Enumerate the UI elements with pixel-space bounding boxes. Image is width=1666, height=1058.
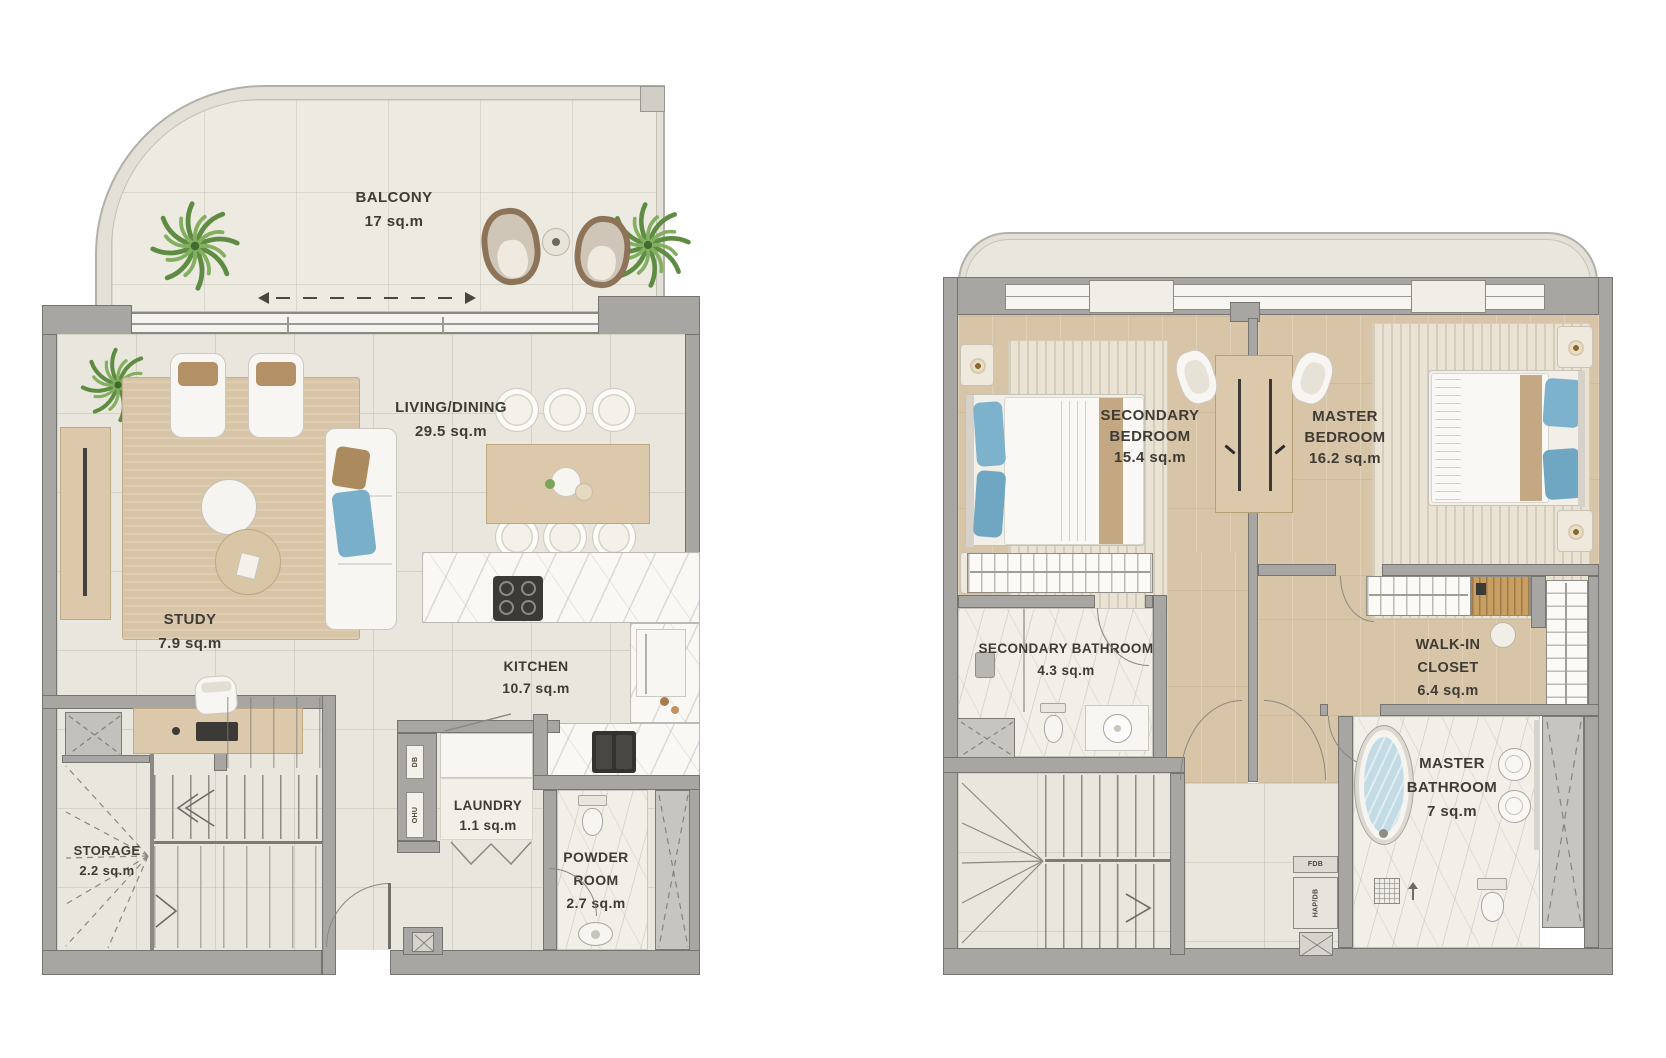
bed-throw [1520, 375, 1542, 501]
balcony-side-table [542, 228, 570, 256]
laundry-label: LAUNDRY 1.1 sq.m [454, 796, 522, 836]
canopy-end-bar [640, 86, 665, 112]
decor-bottle [660, 697, 669, 706]
washer [440, 733, 533, 778]
armchair [248, 353, 304, 438]
dining-table [486, 444, 650, 524]
vanity-counter [1534, 720, 1540, 850]
wall [1598, 277, 1613, 975]
wall [42, 305, 132, 335]
bathroom-vanity [1085, 705, 1149, 751]
hapdb-panel: HAP/DB [1293, 877, 1338, 929]
closet-hanger-column [1546, 580, 1588, 712]
fdb-panel: FDB [1293, 856, 1338, 873]
wall [943, 757, 1185, 773]
floorplan-canvas: BALCONY 17 sq.m LIVING/DINING [0, 0, 1666, 1058]
shower-drain [1374, 878, 1400, 904]
palm-plant-icon [147, 198, 243, 294]
bed-pillow-blue [1542, 378, 1582, 428]
shaft-box [1299, 932, 1333, 956]
wall [1170, 773, 1185, 955]
nightstand [960, 344, 994, 386]
tv-console [60, 427, 111, 620]
toilet [578, 795, 607, 806]
shaft-box [957, 718, 1015, 758]
bed-pillow-blue [973, 401, 1006, 467]
kitchen-island [422, 552, 700, 623]
sliding-door [132, 312, 598, 334]
balcony-label: BALCONY 17 sq.m [356, 186, 433, 234]
dining-chair [543, 388, 587, 432]
wall [1320, 704, 1328, 716]
washer-lid-line [443, 711, 513, 733]
headboard [1578, 371, 1585, 507]
stairs-upper-dashed [227, 697, 322, 768]
living-dining-label: LIVING/DINING 29.5 sq.m [395, 396, 507, 444]
shaft-tall [1542, 716, 1584, 928]
window-mullion [1411, 280, 1486, 313]
bathtub [1355, 726, 1413, 844]
closet-shelf-unit [1471, 576, 1531, 616]
stairs-landing-line [154, 841, 322, 844]
storage-label: STORAGE 2.2 sq.m [74, 841, 141, 881]
stair-winder-icon [960, 775, 1045, 947]
bathroom-sink [1498, 748, 1531, 781]
stairs-direction-chevron-icon [1122, 892, 1156, 924]
entry-door-leaf [388, 883, 391, 949]
throw-pillow [331, 446, 371, 491]
pouf [1490, 622, 1516, 648]
walkin-closet-label: WALK-IN CLOSET 6.4 sq.m [1416, 634, 1481, 703]
powder-sink [578, 922, 613, 946]
wall [1531, 576, 1546, 628]
coffee-table [201, 479, 257, 535]
wall [1145, 595, 1153, 608]
toilet-bowl [1481, 892, 1504, 922]
db-panel: DB [406, 745, 424, 779]
coffee-table-wood [215, 529, 281, 595]
stairs-flight [1045, 775, 1170, 857]
wall [42, 950, 322, 975]
wall [42, 305, 57, 975]
wall [1382, 564, 1599, 576]
kitchen-sink [592, 731, 636, 773]
wall [1153, 595, 1167, 773]
toilet [1477, 878, 1507, 890]
wall [533, 775, 700, 790]
shaft-box [412, 932, 434, 952]
slide-direction-arrow-icon [258, 292, 476, 304]
nightstand [1557, 510, 1593, 552]
cooktop [493, 576, 543, 621]
wall [943, 277, 958, 975]
window-mullion [1089, 280, 1174, 313]
throw-pillow-blue [331, 489, 377, 558]
toilet-bowl [1044, 715, 1063, 743]
armchair [170, 353, 226, 438]
dining-chair [592, 388, 636, 432]
closet-hanger-row [1366, 576, 1471, 616]
kitchen-label: KITCHEN 10.7 sq.m [502, 655, 569, 699]
wall [397, 841, 440, 853]
toilet-bowl [582, 808, 603, 836]
bed-pillow-blue [973, 470, 1007, 538]
shower-arrow-icon [1408, 882, 1418, 900]
nightstand [1557, 326, 1593, 368]
stairs-direction-chevron-icon [168, 788, 220, 828]
wall [598, 296, 700, 335]
wardrobe [967, 553, 1153, 593]
wall [1584, 716, 1599, 948]
fridge [636, 629, 686, 697]
bed-pillow-blue [1542, 448, 1582, 500]
wall [1380, 704, 1599, 716]
wall [943, 948, 1613, 975]
stairs-direction-chevron-icon [152, 893, 180, 929]
stairs-landing-line [1045, 859, 1170, 862]
bifold-door-icon [449, 840, 533, 866]
wall [1258, 564, 1336, 576]
built-in-desk [1215, 355, 1293, 513]
decor-bottle [671, 706, 679, 714]
ohu-panel: OHU [406, 792, 424, 838]
secondary-bedroom-label: SECONDARY BEDROOM 15.4 sq.m [1101, 405, 1200, 468]
wall [958, 595, 1095, 608]
master-bedroom-label: MASTER BEDROOM 16.2 sq.m [1304, 406, 1385, 469]
study-label: STUDY 7.9 sq.m [158, 608, 221, 656]
bathroom-sink [1498, 790, 1531, 823]
wall [1588, 576, 1599, 716]
master-bathroom-label: MASTER BATHROOM 7 sq.m [1407, 752, 1497, 824]
shaft-box [65, 712, 122, 756]
shaft-tall [655, 790, 690, 950]
bed [1428, 370, 1584, 506]
toilet [1040, 703, 1066, 713]
sofa [325, 428, 397, 630]
